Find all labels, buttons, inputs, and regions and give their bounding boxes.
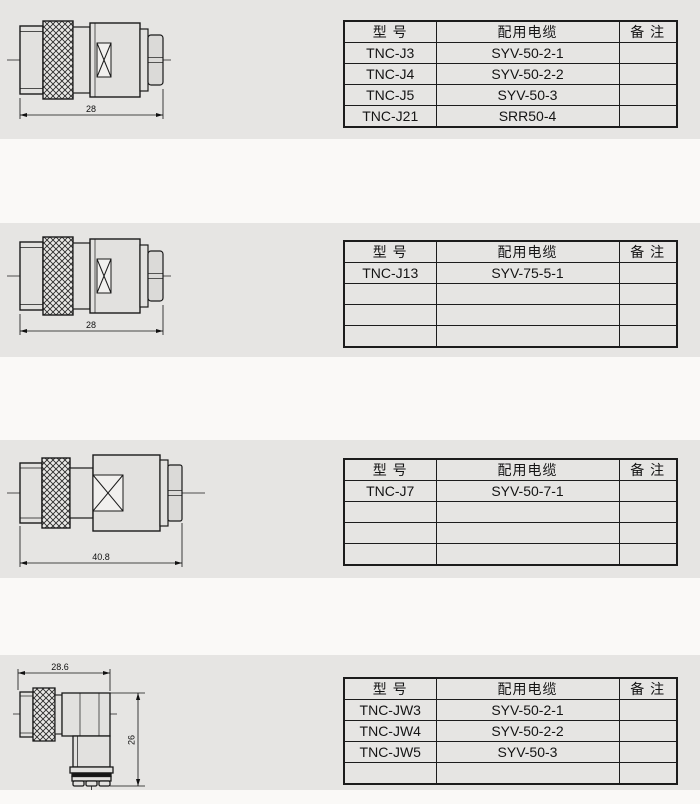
spec-table-4: 型 号 配用电缆 备 注 TNC-JW3 SYV-50-2-1 TNC-JW4 … (343, 677, 678, 785)
table-row (344, 502, 677, 523)
neck-ring (55, 695, 62, 734)
neck-ring (70, 468, 93, 518)
remark-cell (619, 721, 677, 742)
cable-cell: SYV-50-2-2 (436, 721, 619, 742)
remark-cell (619, 326, 677, 348)
remark-cell (619, 284, 677, 305)
model-cell: TNC-JW5 (344, 742, 436, 763)
cable-cell: SYV-50-2-1 (436, 700, 619, 721)
table-row (344, 763, 677, 785)
model-cell (344, 502, 436, 523)
cable-cell (436, 523, 619, 544)
connector-drawing-straight-1: 28 (5, 12, 175, 127)
cable-cell: SYV-50-3 (436, 85, 619, 106)
col-header-model: 型 号 (344, 241, 436, 263)
cable-cell (436, 326, 619, 348)
spec-table-2: 型 号 配用电缆 备 注 TNC-J13 SYV-75-5-1 (343, 240, 678, 348)
table-row: TNC-J21 SRR50-4 (344, 106, 677, 128)
model-cell (344, 326, 436, 348)
table-row (344, 544, 677, 566)
model-cell: TNC-JW3 (344, 700, 436, 721)
remark-cell (619, 544, 677, 566)
dimension-label-height: 26 (127, 735, 137, 745)
cable-entry-cap (168, 465, 182, 521)
knurled-nut (43, 237, 73, 315)
cable-cell (436, 544, 619, 566)
section-band-3: 40.8 型 号 配用电缆 备 注 TNC-J7 SYV-50-7-1 (0, 440, 700, 578)
model-cell: TNC-J21 (344, 106, 436, 128)
col-header-cable: 配用电缆 (436, 21, 619, 43)
remark-cell (619, 700, 677, 721)
col-header-remark: 备 注 (619, 21, 677, 43)
col-header-remark: 备 注 (619, 678, 677, 700)
col-header-model: 型 号 (344, 21, 436, 43)
table-header-row: 型 号 配用电缆 备 注 (344, 21, 677, 43)
neck-ring (73, 243, 90, 309)
cable-cell (436, 763, 619, 785)
remark-cell (619, 763, 677, 785)
crimp-ring (72, 777, 111, 782)
connector-drawing-right-angle: 28.6 26 (10, 656, 170, 796)
table-header-row: 型 号 配用电缆 备 注 (344, 678, 677, 700)
connector-drawing-straight-large: 40.8 (5, 448, 215, 573)
cable-cell: SYV-75-5-1 (436, 263, 619, 284)
cable-cell: SRR50-4 (436, 106, 619, 128)
remark-cell (619, 263, 677, 284)
col-header-remark: 备 注 (619, 241, 677, 263)
model-cell: TNC-J13 (344, 263, 436, 284)
remark-cell (619, 305, 677, 326)
remark-cell (619, 481, 677, 502)
col-header-model: 型 号 (344, 459, 436, 481)
table-row: TNC-JW5 SYV-50-3 (344, 742, 677, 763)
remark-cell (619, 64, 677, 85)
table-row: TNC-JW4 SYV-50-2-2 (344, 721, 677, 742)
knurled-nut (42, 458, 70, 528)
remark-cell (619, 523, 677, 544)
knurled-nut (33, 688, 55, 741)
cable-flange (70, 767, 113, 773)
catalog-page: 28 型 号 配用电缆 备 注 TNC-J3 SYV-50-2-1 TNC-J4… (0, 0, 700, 804)
col-header-remark: 备 注 (619, 459, 677, 481)
table-row: TNC-J4 SYV-50-2-2 (344, 64, 677, 85)
table-row: TNC-J7 SYV-50-7-1 (344, 481, 677, 502)
col-header-cable: 配用电缆 (436, 241, 619, 263)
col-header-cable: 配用电缆 (436, 459, 619, 481)
section-band-2: 28 型 号 配用电缆 备 注 TNC-J13 SYV-75-5-1 (0, 223, 700, 357)
remark-cell (619, 43, 677, 64)
connector-drawing-straight-2: 28 (5, 228, 175, 343)
cable-cell: SYV-50-7-1 (436, 481, 619, 502)
dimension-label: 28 (86, 104, 96, 114)
crimp-bump (86, 781, 97, 786)
model-cell (344, 544, 436, 566)
remark-cell (619, 85, 677, 106)
model-cell: TNC-J7 (344, 481, 436, 502)
cable-cell (436, 284, 619, 305)
remark-cell (619, 502, 677, 523)
crimp-bump (99, 781, 110, 786)
col-header-model: 型 号 (344, 678, 436, 700)
remark-cell (619, 742, 677, 763)
table-row (344, 305, 677, 326)
table-row: TNC-J3 SYV-50-2-1 (344, 43, 677, 64)
remark-cell (619, 106, 677, 128)
plug-barrel (20, 242, 43, 310)
cable-cell: SYV-50-3 (436, 742, 619, 763)
plug-barrel (20, 692, 33, 737)
dimension-label-width: 28.6 (51, 662, 69, 672)
table-row: TNC-J13 SYV-75-5-1 (344, 263, 677, 284)
neck-ring (73, 27, 90, 93)
spec-table-1: 型 号 配用电缆 备 注 TNC-J3 SYV-50-2-1 TNC-J4 SY… (343, 20, 678, 128)
plug-barrel (20, 463, 42, 523)
section-band-4: 28.6 26 型 号 配用电缆 备 注 TNC-JW3 SYV-50-2-1 … (0, 655, 700, 790)
section-band-1: 28 型 号 配用电缆 备 注 TNC-J3 SYV-50-2-1 TNC-J4… (0, 0, 700, 139)
table-row: TNC-JW3 SYV-50-2-1 (344, 700, 677, 721)
model-cell (344, 523, 436, 544)
knurled-nut (43, 21, 73, 99)
model-cell: TNC-J3 (344, 43, 436, 64)
table-row (344, 284, 677, 305)
table-header-row: 型 号 配用电缆 备 注 (344, 459, 677, 481)
cable-entry-cap (148, 35, 163, 85)
model-cell (344, 284, 436, 305)
cable-cell: SYV-50-2-1 (436, 43, 619, 64)
dimension-label: 28 (86, 320, 96, 330)
cable-entry-cap (148, 251, 163, 301)
model-cell (344, 763, 436, 785)
elbow-body (62, 693, 110, 736)
table-row (344, 523, 677, 544)
dimension-label: 40.8 (92, 552, 110, 562)
crimp-bump (73, 781, 84, 786)
model-cell: TNC-J4 (344, 64, 436, 85)
spec-table-3: 型 号 配用电缆 备 注 TNC-J7 SYV-50-7-1 (343, 458, 678, 566)
cable-cell (436, 305, 619, 326)
model-cell: TNC-J5 (344, 85, 436, 106)
table-row (344, 326, 677, 348)
table-header-row: 型 号 配用电缆 备 注 (344, 241, 677, 263)
plug-barrel (20, 26, 43, 94)
model-cell (344, 305, 436, 326)
cable-cell (436, 502, 619, 523)
col-header-cable: 配用电缆 (436, 678, 619, 700)
cable-cell: SYV-50-2-2 (436, 64, 619, 85)
elbow-leg (73, 736, 110, 767)
table-row: TNC-J5 SYV-50-3 (344, 85, 677, 106)
model-cell: TNC-JW4 (344, 721, 436, 742)
